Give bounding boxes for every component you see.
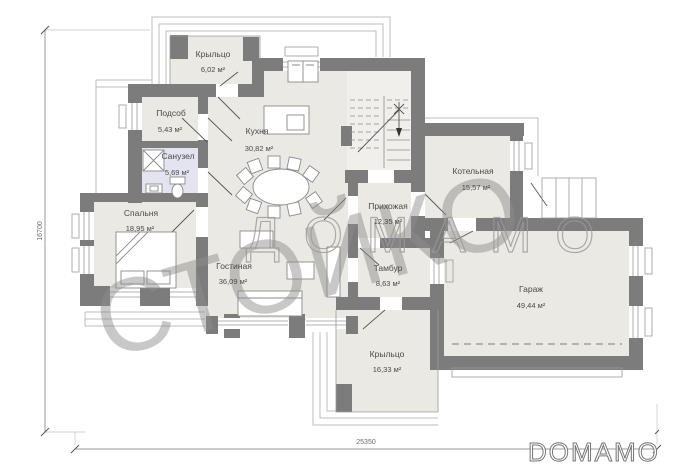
room-label-boiler: Котельная [452,166,494,176]
room-label-bathroom: Санузел [161,151,194,161]
window [510,141,532,171]
brand-logo-text: DOMAMO [528,437,660,467]
room-area-kitchen: 30,82 м² [245,144,274,153]
room-area-boiler: 15,57 м² [462,183,491,192]
room-area-garage: 49,44 м² [517,301,546,310]
porch-pier [336,384,352,412]
room-label-living: Гостиная [216,261,252,271]
dimension-left-value: 16700 [37,221,44,241]
floor-utility [142,95,200,145]
room-area-utility: 5,43 м² [158,125,183,134]
room-area-living: 36,09 м² [219,277,248,286]
room-label-porch-top: Крыльцо [196,49,231,59]
room-label-porch-bottom: Крыльцо [370,349,405,359]
window [119,103,142,130]
room-area-hallway: 12,35 м² [374,217,403,226]
room-area-bedroom: 18,95 м² [126,224,155,233]
room-area-vestibule: 8,63 м² [376,279,401,288]
window [629,246,652,276]
room-area-bathroom: 5,69 м² [165,168,190,177]
room-label-hallway: Прихожая [368,201,408,211]
room-label-kitchen: Кухня [246,126,269,136]
label-leader [531,183,547,206]
window [629,306,652,338]
room-label-vestibule: Тамбур [374,263,403,273]
dining-table-icon [253,169,309,205]
room-label-garage: Гараж [519,284,543,294]
brand-logo: DOMAMO [528,430,660,467]
porch-pier [170,35,188,59]
room-label-bedroom: Спальня [124,208,159,218]
kitchen-island-icon [264,106,309,134]
room-area-porch-bottom: 16,33 м² [373,365,402,374]
bath-sink-icon [146,184,162,193]
dimension-bottom-value: 25350 [356,439,376,446]
watermark-outline: ДОМАМО [246,207,618,263]
floor-stairs [347,70,413,172]
kitchen-sink-icon [288,61,318,82]
porch-pier [243,37,259,61]
floor-plan-page: СТОЙКО ДОМАМО Крыльцо 6,02 м² Подсоб 5,4… [0,0,679,470]
floor-plan-drawing: СТОЙКО ДОМАМО Крыльцо 6,02 м² Подсоб 5,4… [0,0,679,470]
room-label-utility: Подсоб [156,108,186,118]
room-area-porch-top: 6,02 м² [201,65,226,74]
window [72,212,94,240]
